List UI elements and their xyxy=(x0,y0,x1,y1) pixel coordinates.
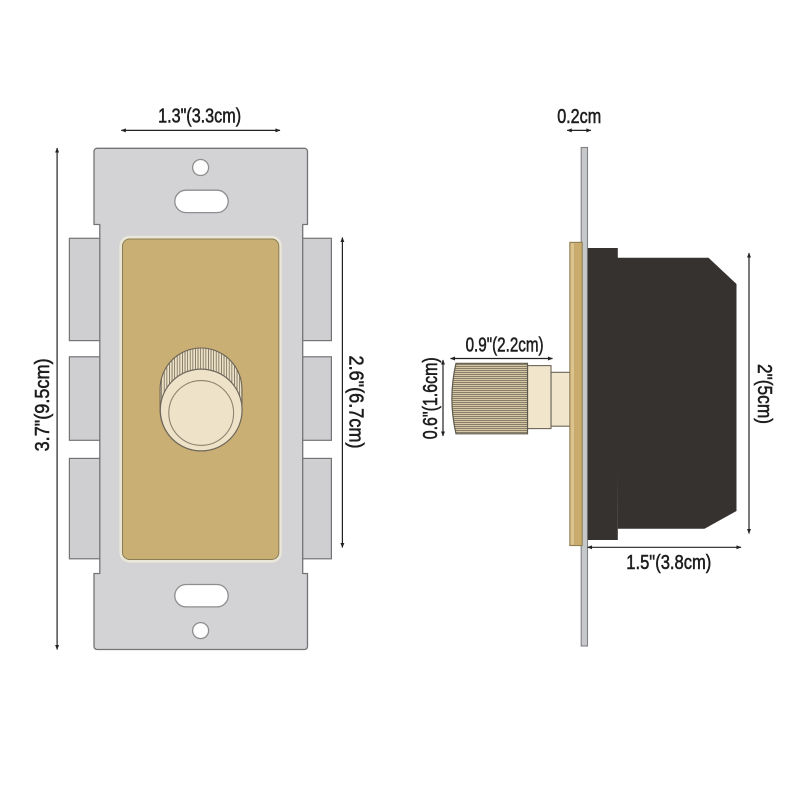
svg-text:2.6"(6.7cm): 2.6"(6.7cm) xyxy=(345,356,367,449)
svg-text:1.3"(3.3cm): 1.3"(3.3cm) xyxy=(158,105,241,127)
svg-text:0.9"(2.2cm): 0.9"(2.2cm) xyxy=(466,334,544,356)
svg-text:2"(5cm): 2"(5cm) xyxy=(753,364,775,424)
svg-text:0.6"(1.6cm): 0.6"(1.6cm) xyxy=(420,357,442,439)
svg-text:3.7"(9.5cm): 3.7"(9.5cm) xyxy=(32,358,54,451)
svg-text:0.2cm: 0.2cm xyxy=(557,106,601,128)
svg-text:1.5"(3.8cm): 1.5"(3.8cm) xyxy=(626,552,711,574)
